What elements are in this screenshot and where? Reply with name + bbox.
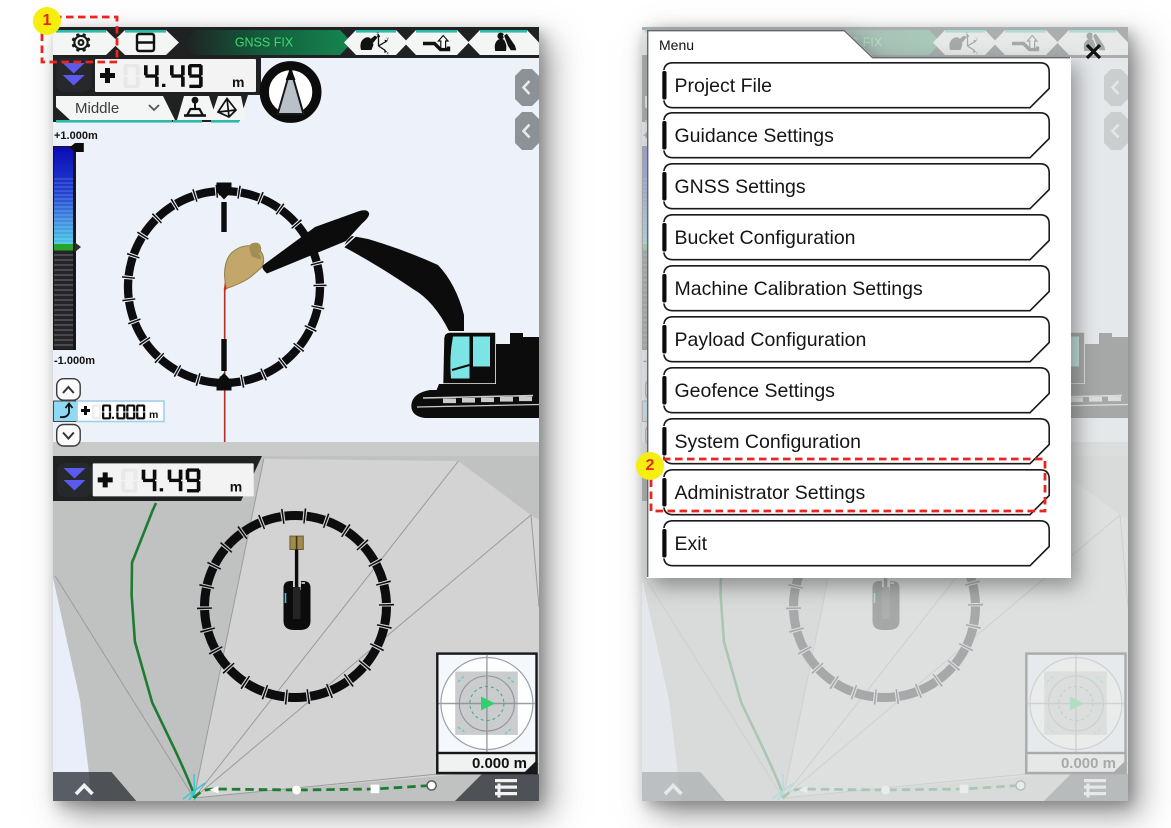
svg-text:Middle: Middle <box>75 100 119 117</box>
svg-text:GNSS FIX: GNSS FIX <box>235 36 294 50</box>
svg-text:0.000 m: 0.000 m <box>472 755 527 772</box>
svg-text:+1.000m: +1.000m <box>54 130 98 142</box>
svg-text:m: m <box>149 409 158 421</box>
svg-text:-1.000m: -1.000m <box>54 355 95 367</box>
